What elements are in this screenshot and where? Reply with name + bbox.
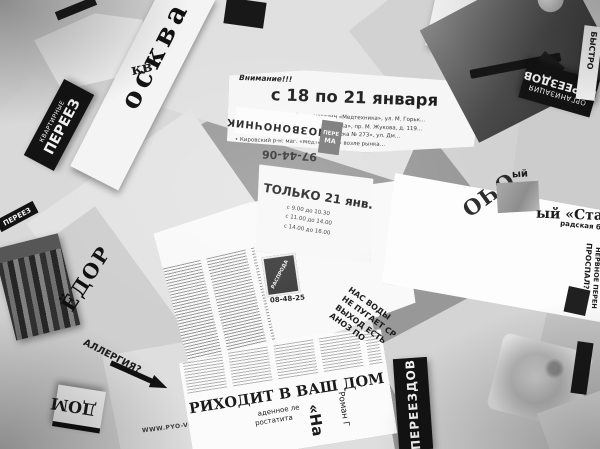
pereezdov-vertical-banner: ПЕРЕЕЗДОВ bbox=[393, 357, 433, 449]
stal-fragment-top: ый bbox=[512, 169, 529, 181]
bystro-text: БЫСТРО bbox=[584, 31, 597, 70]
banner-text: ПЕРЕЕЗДОВ bbox=[403, 358, 423, 449]
tolko-headline: ТОЛЬКО 21 янв. bbox=[263, 182, 374, 212]
newspaper-collage-photo: осква кв КВАРТИРНЫЕ ПЕРЕЕЗ ПЕРЕЕЗ ЁДОР В… bbox=[0, 0, 600, 449]
kv-fragment: кв bbox=[130, 58, 154, 78]
cup-shape bbox=[533, 0, 568, 16]
rasprodazha-text: РАСПРОДА bbox=[271, 260, 290, 291]
roman-vertical-text: Роман Г bbox=[335, 391, 350, 427]
small-article-photo bbox=[496, 181, 540, 213]
block-line-2: МА bbox=[324, 136, 337, 146]
dom-headline: ДОМ bbox=[49, 394, 97, 418]
pozvonochnik-headline: ПОЗВОНОЧНИК bbox=[226, 115, 328, 136]
rasprodazha-photo: РАСПРОДА bbox=[261, 253, 300, 297]
date-range-headline: с 18 по 21 января bbox=[228, 85, 480, 112]
na-vertical-text: «На bbox=[305, 403, 326, 438]
vnimanie-label: Внимание!!! bbox=[239, 74, 292, 84]
dom-scrap: ДОМ bbox=[52, 385, 106, 434]
phone-number-top: 97-44-06 bbox=[262, 148, 318, 163]
